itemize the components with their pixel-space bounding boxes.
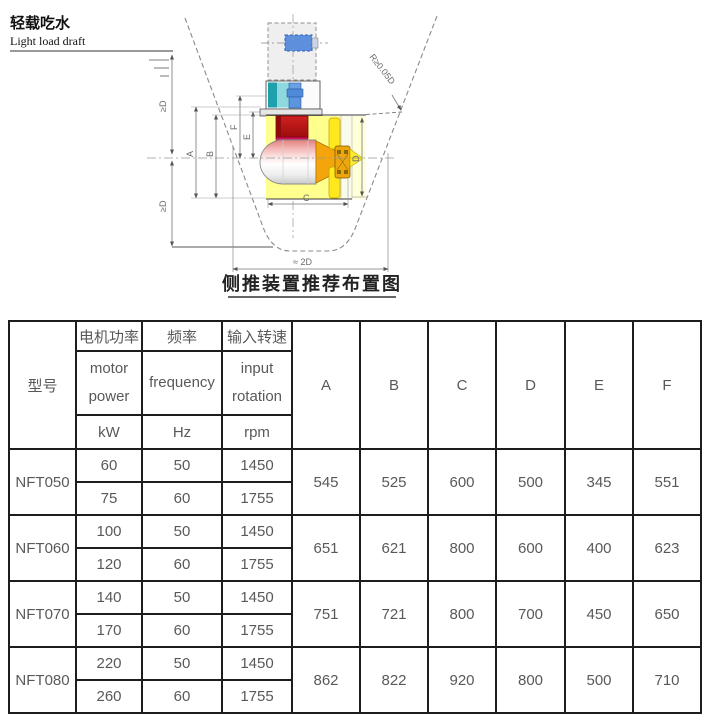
dim-a-cell: 751	[292, 581, 360, 647]
rotation-cell: 1450	[222, 581, 292, 614]
dim-f-cell: 551	[633, 449, 701, 515]
header-frequency-unit: Hz	[142, 415, 222, 449]
model-cell: NFT050	[9, 449, 76, 515]
dim-label-c: C	[303, 193, 310, 203]
header-frequency-zh: 频率	[142, 321, 222, 351]
dim-d-cell: 500	[496, 449, 565, 515]
draft-label-zh: 轻载吃水	[10, 14, 71, 32]
table-row: NFT05060501450545525600500345551	[9, 449, 701, 482]
spec-table-body: NFT0506050145054552560050034555175601755…	[9, 449, 701, 713]
thruster-pod	[260, 140, 316, 184]
header-dim-e: E	[565, 321, 633, 449]
dim-f-cell: 623	[633, 515, 701, 581]
frequency-cell: 50	[142, 515, 222, 548]
coupling	[287, 83, 303, 108]
model-cell: NFT070	[9, 581, 76, 647]
model-cell: NFT060	[9, 515, 76, 581]
power-cell: 75	[76, 482, 142, 515]
header-model: 型号	[9, 321, 76, 449]
dim-label-ge-d-lower: ≥D	[158, 200, 168, 212]
dim-a-cell: 545	[292, 449, 360, 515]
dim-b-cell: 525	[360, 449, 428, 515]
dim-e-cell: 450	[565, 581, 633, 647]
dim-b-cell: 822	[360, 647, 428, 713]
rotation-cell: 1755	[222, 614, 292, 647]
frequency-cell: 50	[142, 647, 222, 680]
header-power-unit: kW	[76, 415, 142, 449]
dim-c-cell: 800	[428, 515, 496, 581]
dim-label-2d: ≈ 2D	[293, 257, 312, 267]
dim-c-cell: 920	[428, 647, 496, 713]
dim-c-cell: 600	[428, 449, 496, 515]
rotation-cell: 1450	[222, 515, 292, 548]
spec-table-container: 型号 电机功率 频率 输入转速 A B C D E F motor power …	[8, 320, 702, 714]
frequency-cell: 50	[142, 449, 222, 482]
header-dim-a: A	[292, 321, 360, 449]
power-cell: 100	[76, 515, 142, 548]
header-rotation-zh: 输入转速	[222, 321, 292, 351]
frequency-cell: 60	[142, 680, 222, 713]
rotation-cell: 1450	[222, 449, 292, 482]
power-cell: 170	[76, 614, 142, 647]
header-power-zh: 电机功率	[76, 321, 142, 351]
dim-label-d: D	[351, 155, 361, 162]
diagram-caption: 侧推装置推荐布置图	[222, 273, 402, 294]
dim-e-cell: 500	[565, 647, 633, 713]
table-row: NFT070140501450751721800700450650	[9, 581, 701, 614]
header-dim-c: C	[428, 321, 496, 449]
rotation-cell: 1450	[222, 647, 292, 680]
dim-label-f: F	[229, 124, 239, 130]
horizontal-motor	[285, 35, 312, 51]
power-cell: 60	[76, 449, 142, 482]
header-dim-d: D	[496, 321, 565, 449]
dim-f-cell: 710	[633, 647, 701, 713]
header-dim-b: B	[360, 321, 428, 449]
vertical-motor	[260, 81, 322, 116]
rotation-cell: 1755	[222, 548, 292, 581]
dim-a-cell: 651	[292, 515, 360, 581]
header-power-en: motor power	[76, 351, 142, 415]
dim-label-ge-d-upper: ≥D	[158, 100, 168, 112]
dim-a-cell: 862	[292, 647, 360, 713]
thruster-layout-diagram: 轻载吃水 Light load draft ≥D ≥D A B F E D C	[0, 0, 707, 314]
dim-d-cell: 600	[496, 515, 565, 581]
draft-label-en: Light load draft	[10, 34, 86, 48]
dim-e-cell: 345	[565, 449, 633, 515]
dim-label-a: A	[185, 151, 195, 157]
frequency-cell: 50	[142, 581, 222, 614]
rotation-cell: 1755	[222, 482, 292, 515]
table-row: NFT080220501450862822920800500710	[9, 647, 701, 680]
frequency-cell: 60	[142, 548, 222, 581]
frequency-cell: 60	[142, 482, 222, 515]
header-dim-f: F	[633, 321, 701, 449]
dim-e-cell: 400	[565, 515, 633, 581]
header-rotation-unit: rpm	[222, 415, 292, 449]
dim-d-cell: 700	[496, 581, 565, 647]
power-cell: 220	[76, 647, 142, 680]
dim-d-cell: 800	[496, 647, 565, 713]
dim-label-b: B	[205, 151, 215, 157]
dim-f-cell: 650	[633, 581, 701, 647]
radius-note: R≥0.05D	[367, 52, 397, 86]
header-frequency-en: frequency	[142, 351, 222, 415]
rotation-cell: 1755	[222, 680, 292, 713]
dim-lines-left	[191, 96, 267, 198]
dim-b-cell: 721	[360, 581, 428, 647]
frequency-cell: 60	[142, 614, 222, 647]
model-cell: NFT080	[9, 647, 76, 713]
power-cell: 140	[76, 581, 142, 614]
dim-c-cell: 800	[428, 581, 496, 647]
waterline	[10, 51, 173, 76]
dim-label-e: E	[242, 134, 252, 140]
table-row: NFT060100501450651621800600400623	[9, 515, 701, 548]
radius-leader	[392, 95, 401, 110]
power-cell: 120	[76, 548, 142, 581]
spec-table: 型号 电机功率 频率 输入转速 A B C D E F motor power …	[8, 320, 702, 714]
optional-motor-box	[261, 23, 328, 80]
header-rotation-en: input rotation	[222, 351, 292, 415]
dim-b-cell: 621	[360, 515, 428, 581]
power-cell: 260	[76, 680, 142, 713]
